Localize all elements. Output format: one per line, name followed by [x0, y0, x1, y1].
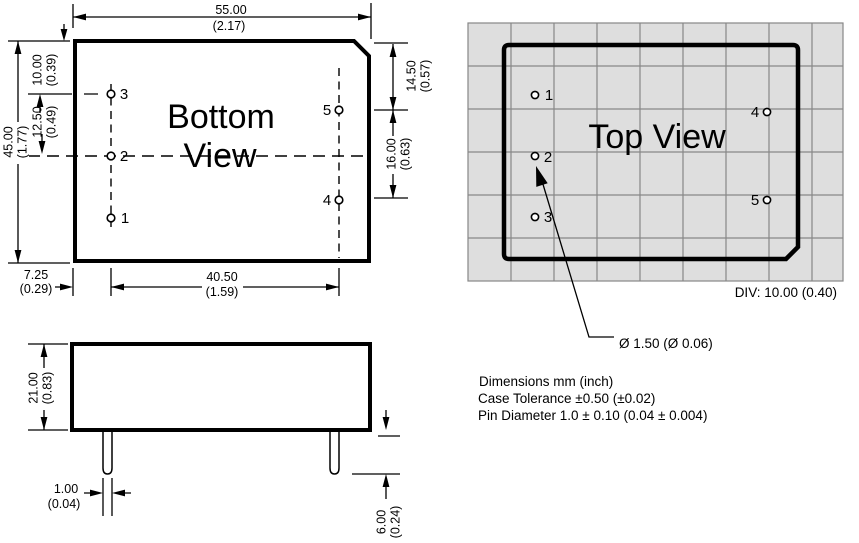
dim-pin-dia-in: (0.04) — [48, 497, 81, 511]
note-case-tolerance: Case Tolerance ±0.50 (±0.02) — [478, 391, 655, 406]
pin-2-top-label: 2 — [544, 149, 552, 166]
dim-edge-offset-mm: 7.25 — [24, 268, 48, 282]
side-view-case-outline — [72, 344, 370, 430]
pin-1-top — [531, 91, 538, 98]
dim-pin3-pin2-mm: 12.50 — [31, 106, 45, 137]
dim-width-in: (2.17) — [213, 19, 246, 33]
dim-width-mm: 55.00 — [215, 3, 246, 17]
dim-height-mm: 45.00 — [2, 126, 16, 157]
mechanical-drawing-page: Bottom View 55.00 (2.17) 7.25 (0.29) 40.… — [0, 0, 859, 543]
dim-top-pin5-in: (0.57) — [419, 60, 433, 93]
pin-5-label: 5 — [323, 102, 331, 119]
pin-2-label: 2 — [120, 148, 128, 165]
dim-top-pin5-mm: 14.50 — [405, 60, 419, 91]
bottom-view: Bottom View 55.00 (2.17) 7.25 (0.29) 40.… — [2, 3, 433, 299]
note-units: Dimensions mm (inch) — [479, 374, 613, 389]
technical-drawing: Bottom View 55.00 (2.17) 7.25 (0.29) 40.… — [0, 0, 859, 543]
notes-block: Dimensions mm (inch) Case Tolerance ±0.5… — [478, 374, 707, 423]
pin-3-pad — [107, 90, 115, 98]
note-pin-diameter: Pin Diameter 1.0 ± 0.10 (0.04 ± 0.004) — [478, 408, 707, 423]
pin-4-pad — [335, 196, 343, 204]
dim-pin5-pin4-mm: 16.00 — [385, 138, 399, 169]
pin-2-top — [531, 152, 538, 159]
pin-diameter-callout: Ø 1.50 (Ø 0.06) — [619, 336, 713, 351]
top-view: Top View 1 2 3 4 5 DIV: 10.00 (0.40) Ø 1… — [468, 23, 843, 351]
side-view: 21.00 (0.83) 1.00 (0.04) 6.00 (0.24) — [25, 344, 403, 538]
bottom-view-title-line1: Bottom — [167, 98, 275, 136]
dim-pin3-pin2-in: (0.49) — [45, 106, 59, 139]
dim-pin-dia-mm: 1.00 — [54, 482, 78, 496]
dim-top-pin3-mm: 10.00 — [31, 54, 45, 85]
dim-edge-offset-in: (0.29) — [20, 282, 53, 296]
pin-3-top — [531, 213, 538, 220]
dim-pin-span-in: (1.59) — [206, 285, 239, 299]
side-view-pins — [103, 432, 339, 474]
dim-case-height-mm: 21.00 — [27, 372, 41, 403]
pin-2-pad — [107, 152, 115, 160]
top-view-title: Top View — [588, 118, 726, 156]
dim-pin-length-in: (0.24) — [389, 506, 403, 539]
pin-5-top — [763, 196, 770, 203]
dim-pin-span-mm: 40.50 — [206, 270, 237, 284]
grid-division-note: DIV: 10.00 (0.40) — [735, 285, 837, 300]
dim-height-in: (1.77) — [16, 126, 30, 159]
pin-1-top-label: 1 — [545, 87, 553, 104]
dim-pin-length-mm: 6.00 — [375, 510, 389, 534]
dim-pin5-pin4-in: (0.63) — [399, 138, 413, 171]
pin-4-top — [763, 108, 770, 115]
pin-5-pad — [335, 106, 343, 114]
dim-top-pin3-in: (0.39) — [45, 54, 59, 87]
dim-case-height-in: (0.83) — [41, 372, 55, 405]
pin-4-top-label: 4 — [751, 104, 759, 121]
pin-4-label: 4 — [323, 192, 331, 209]
pin-3-label: 3 — [120, 86, 128, 103]
pin-5-top-label: 5 — [751, 192, 759, 209]
pin-1-label: 1 — [121, 210, 129, 227]
pin-1-pad — [107, 214, 115, 222]
